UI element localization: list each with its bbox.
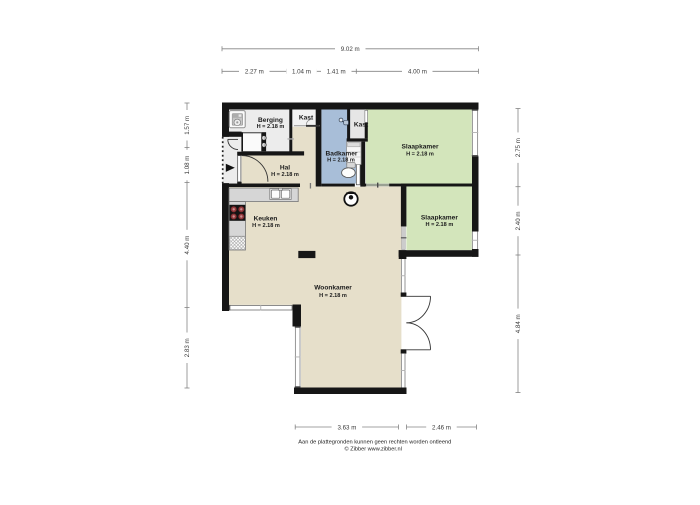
svg-text:2.46 m: 2.46 m bbox=[432, 424, 451, 431]
svg-text:Kast: Kast bbox=[299, 114, 314, 121]
svg-text:Keuken: Keuken bbox=[254, 216, 278, 223]
svg-text:1.41 m: 1.41 m bbox=[327, 69, 346, 76]
svg-text:H = 2.18 m: H = 2.18 m bbox=[406, 151, 434, 157]
svg-text:2.83 m: 2.83 m bbox=[184, 338, 191, 357]
svg-text:H = 2.18 m: H = 2.18 m bbox=[425, 222, 453, 228]
svg-text:© Zibber www.zibber.nl: © Zibber www.zibber.nl bbox=[345, 445, 402, 452]
svg-text:1.08 m: 1.08 m bbox=[184, 156, 191, 175]
svg-text:Kast: Kast bbox=[354, 121, 369, 128]
svg-text:1.04 m: 1.04 m bbox=[292, 69, 311, 76]
svg-text:Aan de plattegronden kunnen ge: Aan de plattegronden kunnen geen rechten… bbox=[298, 440, 451, 446]
svg-text:Hal: Hal bbox=[280, 164, 290, 171]
svg-text:1.57 m: 1.57 m bbox=[184, 116, 191, 135]
svg-text:Woonkamer: Woonkamer bbox=[314, 284, 352, 291]
svg-text:H = 2.18 m: H = 2.18 m bbox=[257, 124, 285, 130]
svg-text:Slaapkamer: Slaapkamer bbox=[421, 214, 458, 221]
svg-text:Badkamer: Badkamer bbox=[326, 151, 358, 158]
svg-text:H = 2.18 m: H = 2.18 m bbox=[271, 172, 299, 178]
svg-text:4.40 m: 4.40 m bbox=[184, 236, 191, 255]
svg-text:4.00 m: 4.00 m bbox=[408, 69, 427, 76]
svg-text:2.75 m: 2.75 m bbox=[515, 138, 522, 157]
svg-text:Slaapkamer: Slaapkamer bbox=[401, 143, 438, 150]
svg-text:H = 2.18 m: H = 2.18 m bbox=[252, 223, 280, 229]
svg-text:2.40 m: 2.40 m bbox=[515, 211, 522, 230]
svg-text:3.63 m: 3.63 m bbox=[337, 424, 356, 431]
svg-text:2.27 m: 2.27 m bbox=[245, 69, 264, 76]
svg-text:4.84 m: 4.84 m bbox=[515, 314, 522, 333]
svg-text:Berging: Berging bbox=[258, 117, 283, 124]
svg-text:9.02 m: 9.02 m bbox=[341, 46, 360, 53]
svg-text:H = 2.18 m: H = 2.18 m bbox=[319, 293, 347, 299]
svg-text:H = 2.18 m: H = 2.18 m bbox=[327, 158, 355, 164]
